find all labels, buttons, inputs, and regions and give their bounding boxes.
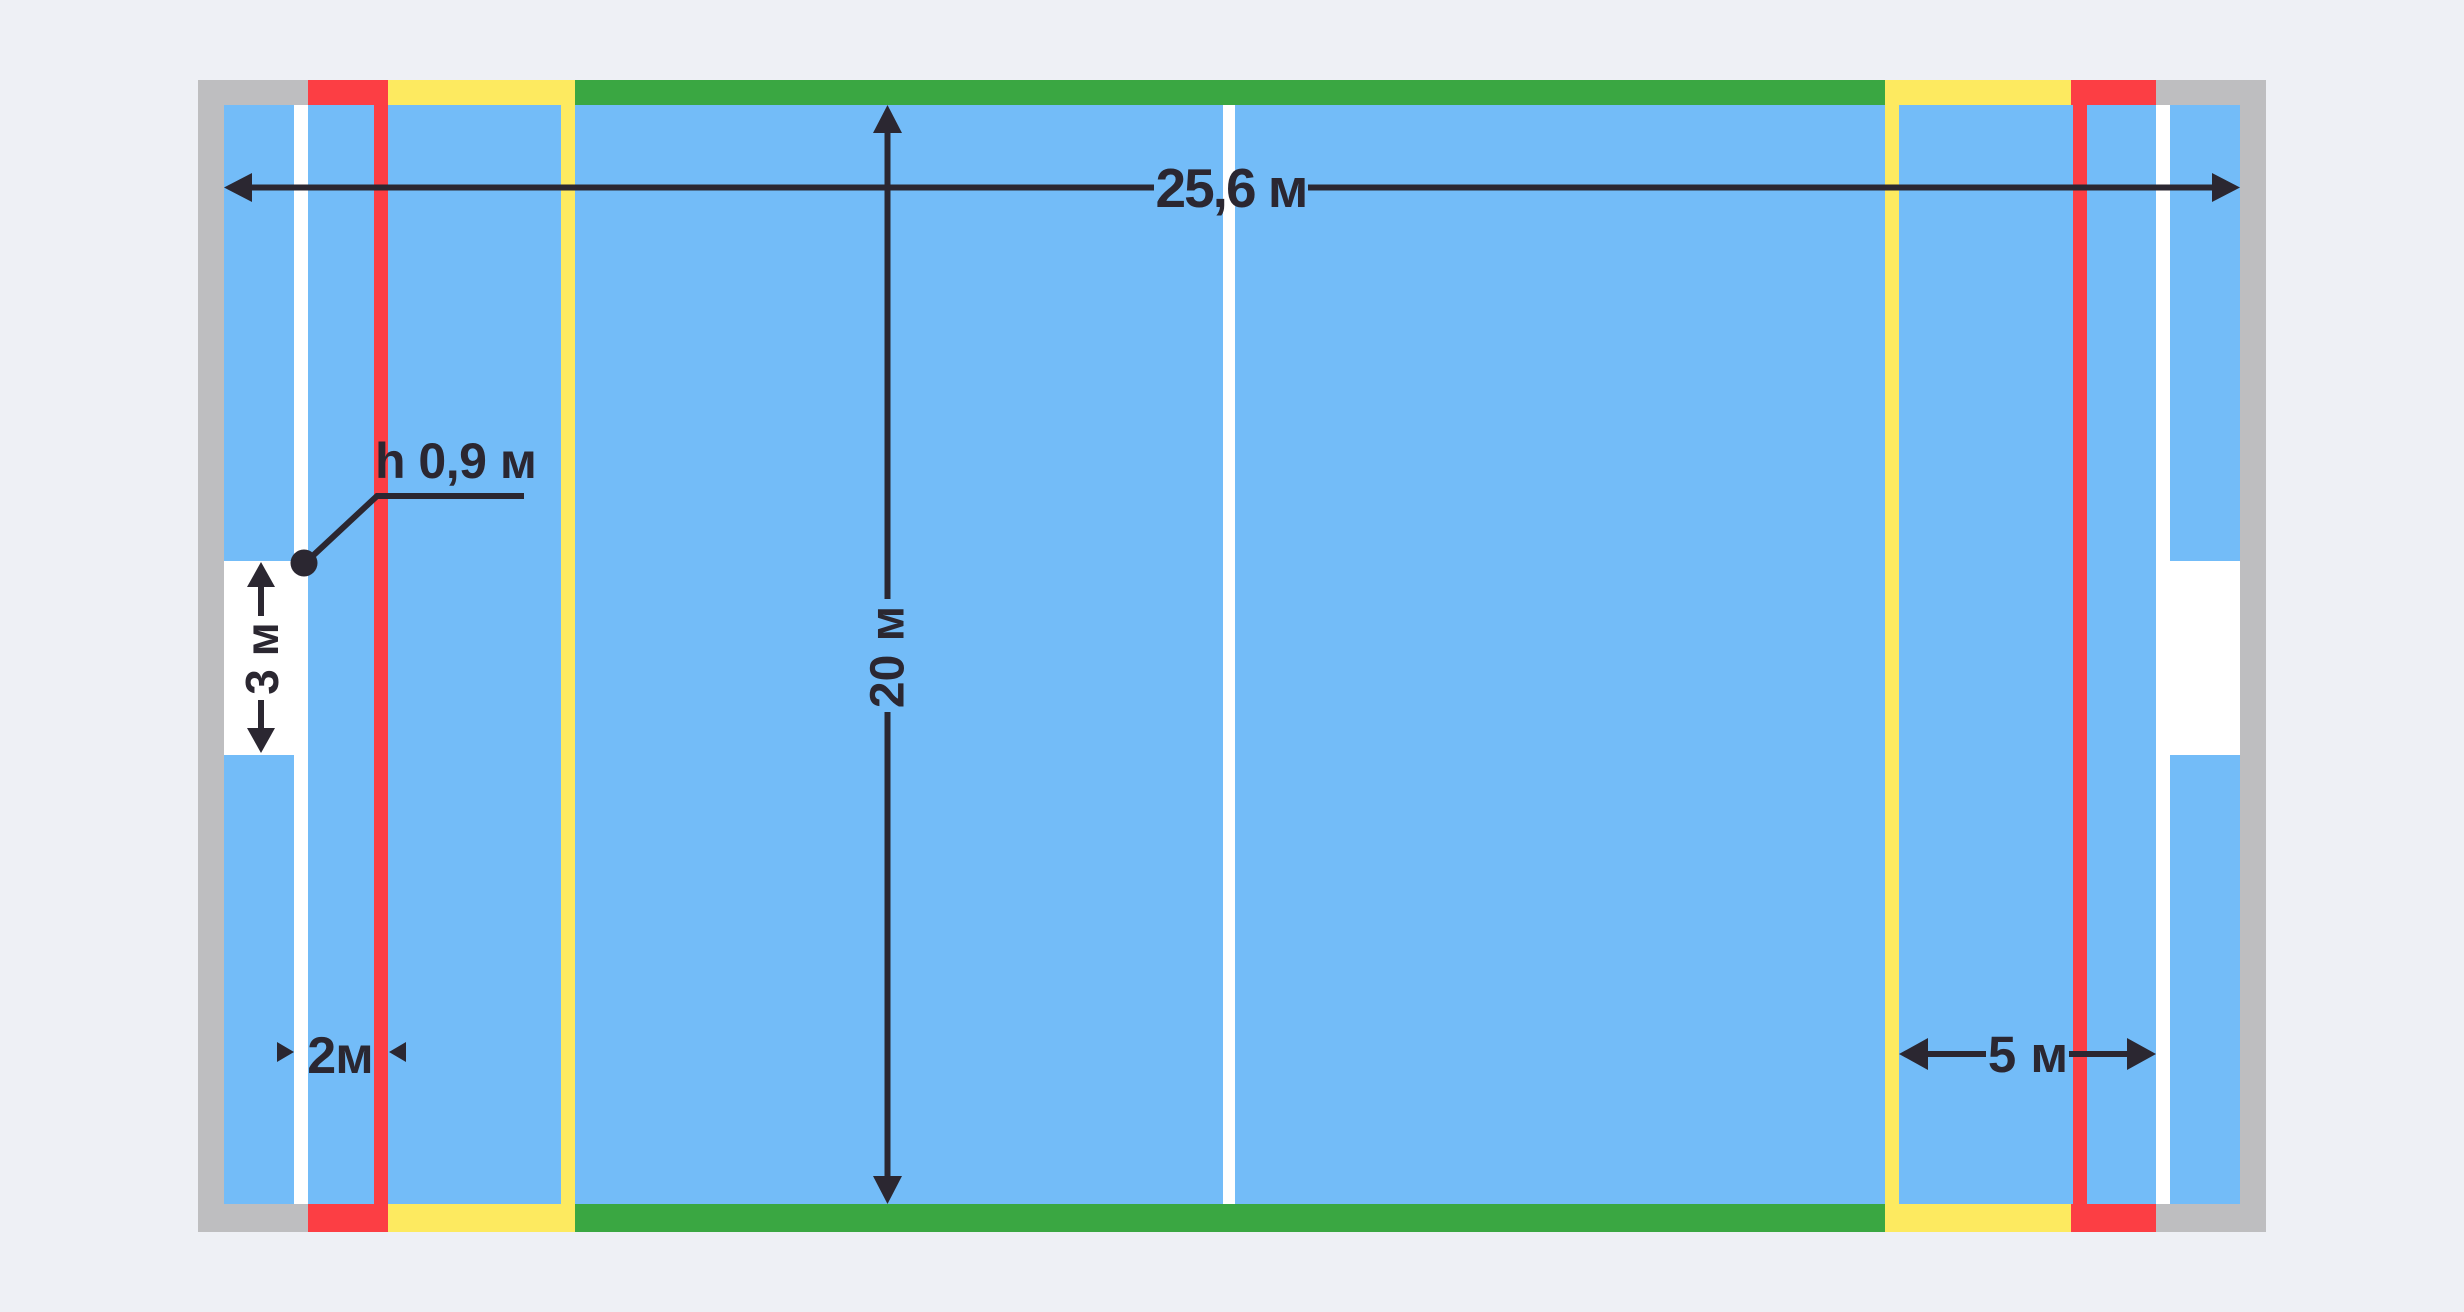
svg-text:2м: 2м (307, 1027, 372, 1085)
svg-text:25,6 м: 25,6 м (1155, 157, 1306, 219)
svg-text:3 м: 3 м (236, 622, 288, 694)
svg-text:5 м: 5 м (1988, 1026, 2068, 1083)
svg-text:20 м: 20 м (862, 606, 915, 708)
svg-text:h 0,9 м: h 0,9 м (375, 433, 536, 489)
